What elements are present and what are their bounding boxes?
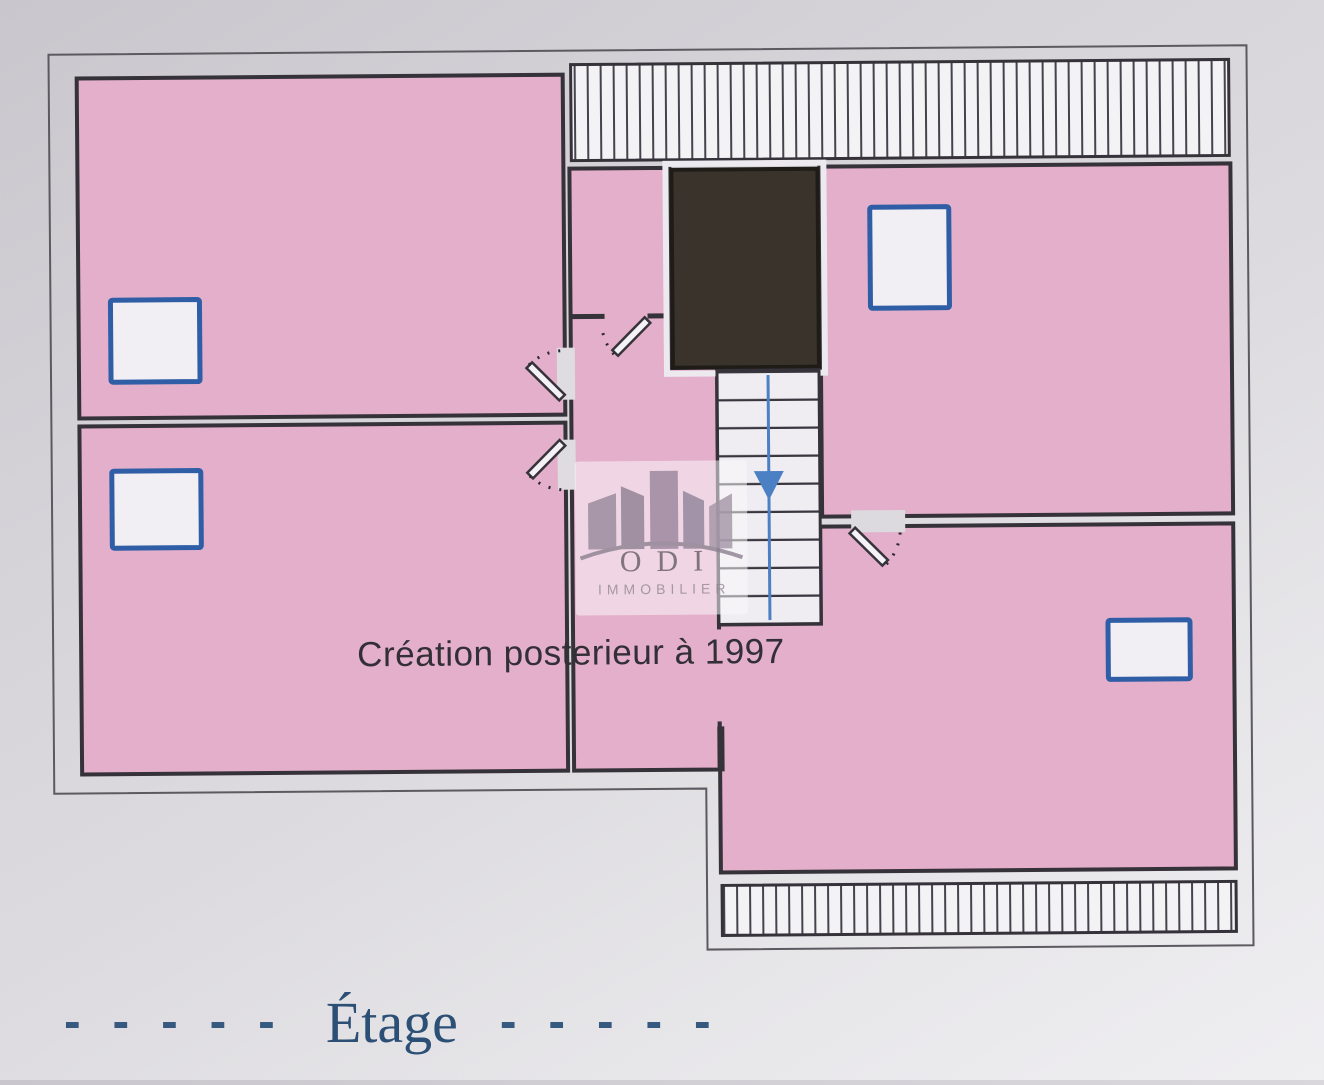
window-top-right-room	[870, 207, 950, 309]
annotation-creation-date: Création posterieur à 1997	[357, 631, 857, 675]
agency-watermark: ODI IMMOBILIER	[575, 460, 748, 615]
watermark-subtitle: IMMOBILIER	[593, 580, 731, 597]
floor-label-dashes-right: - - - - -	[500, 996, 720, 1046]
floor-plan: ODI IMMOBILIER Création posterieur à 199…	[0, 0, 1324, 1085]
window-bottom-right-room	[1108, 620, 1190, 680]
door-opening	[851, 510, 905, 532]
floor-label-title: Étage	[326, 994, 458, 1052]
balcony-hatch-bottom	[722, 881, 1236, 935]
scanned-floor-plan-page: ODI IMMOBILIER Création posterieur à 199…	[0, 0, 1324, 1080]
floor-label: - - - - - Étage - - - - -	[64, 994, 720, 1052]
floor-label-dashes-left: - - - - -	[64, 996, 284, 1046]
watermark-name: ODI	[605, 544, 719, 579]
balcony-hatch-top	[571, 59, 1230, 160]
chimney-void	[671, 169, 819, 368]
window-top-left-room	[110, 300, 200, 383]
window-bottom-left-room	[112, 471, 202, 549]
